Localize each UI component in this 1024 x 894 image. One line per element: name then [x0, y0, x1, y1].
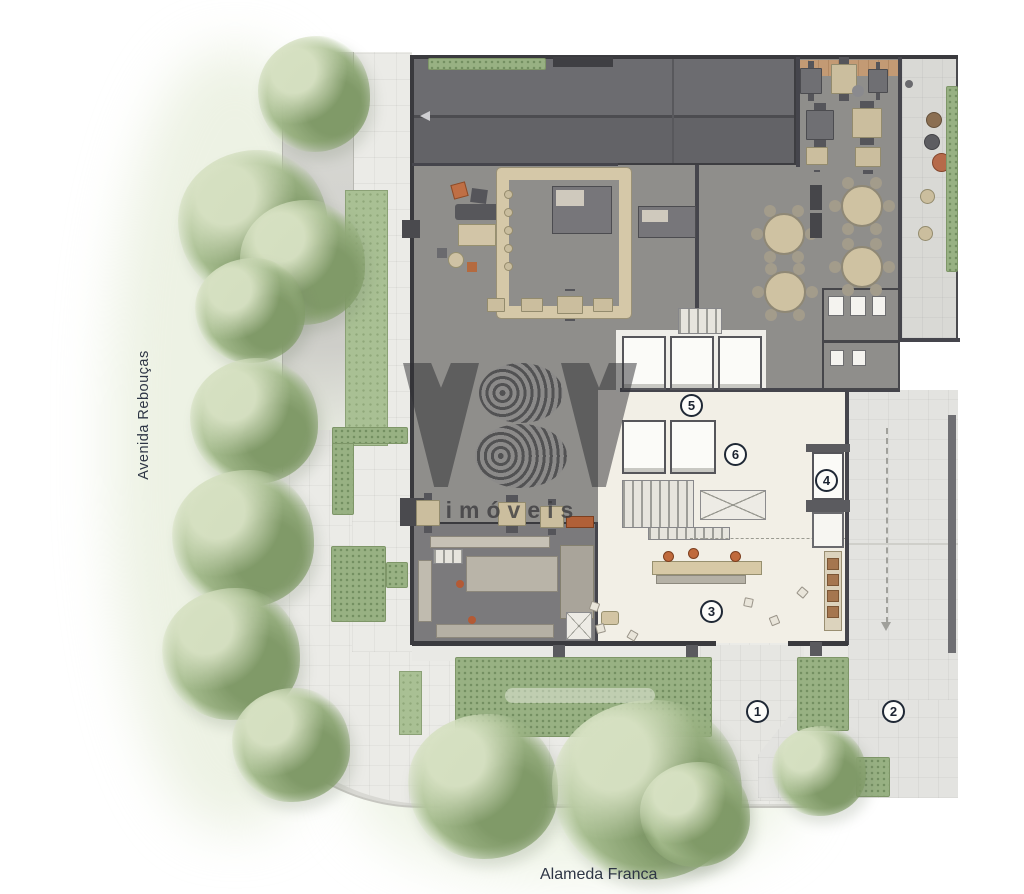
elevator-shaft: [670, 420, 716, 474]
elevator-shaft: [718, 336, 762, 390]
driveway-right-wall: [948, 415, 956, 653]
tree: [408, 714, 558, 859]
elevator-shaft: [670, 336, 714, 390]
terrace-plant: [905, 80, 913, 88]
dining-table-small: [806, 147, 828, 165]
reception-stool: [730, 551, 741, 562]
armchair: [470, 188, 488, 204]
deck-table: [800, 68, 822, 94]
reception-desk: [652, 561, 762, 575]
workstation-top: [642, 210, 668, 222]
ramp-joint: [672, 59, 674, 163]
terrace-table: [920, 189, 935, 204]
workstation-top: [556, 190, 584, 206]
service-elevator-frame: [806, 444, 850, 452]
terrace-pouf: [926, 112, 942, 128]
reception-stool: [663, 551, 674, 562]
reception-front: [656, 575, 746, 584]
wc-fixture: [850, 296, 866, 316]
bench-orange: [566, 516, 594, 528]
street-label-avenida-reboucas: Avenida Rebouças: [136, 320, 160, 510]
coffee-bar-item: [827, 558, 839, 570]
wc-fixture: [872, 296, 886, 316]
wc-fixture: [828, 296, 844, 316]
wc-fixture: [830, 350, 844, 366]
wall-left: [410, 55, 414, 645]
driveway-main: [848, 390, 958, 700]
stool: [437, 248, 447, 258]
ramp-divider: [414, 115, 794, 118]
street-label-alameda-franca: Alameda Franca: [540, 866, 730, 888]
round-table: [841, 246, 883, 288]
lobby-chair: [743, 597, 754, 608]
counter-stool: [504, 244, 513, 253]
deck-table: [868, 69, 888, 93]
service-elevator-band: [806, 500, 850, 512]
tree: [195, 258, 305, 363]
site-plan: 1 2 3 4 5 6 imóveis Avenida Rebouças Ala…: [0, 0, 1024, 894]
kitchen-pot: [468, 616, 476, 624]
banquette: [810, 185, 822, 210]
plan-marker-5: 5: [680, 394, 703, 417]
plan-marker-6: 6: [724, 443, 747, 466]
plan-marker-1: 1: [746, 700, 769, 723]
wall-lobby-right: [845, 390, 849, 645]
plan-marker-2: 2: [882, 700, 905, 723]
side-table: [448, 252, 464, 268]
terrace-hedge: [946, 86, 958, 272]
driveway-centerline: [886, 428, 888, 623]
path-hedge: [797, 657, 849, 731]
round-table: [841, 185, 883, 227]
column: [402, 220, 420, 238]
courtyard-hedge: [332, 427, 408, 444]
tree: [772, 726, 866, 816]
coffee-table: [458, 224, 496, 246]
terrace-table: [918, 226, 933, 241]
wall-ramp-lounge: [412, 163, 618, 166]
kitchen-cabinet: [418, 560, 432, 622]
wall-terrace-bottom: [898, 338, 960, 342]
cafe-table: [557, 296, 583, 314]
meeting-table: [498, 502, 526, 526]
restaurant-steps: [678, 308, 722, 334]
cafe-table: [487, 298, 505, 312]
dining-table: [806, 110, 834, 140]
round-table: [764, 271, 806, 313]
wc-fixture: [852, 350, 866, 366]
reception-stool: [688, 548, 699, 559]
bollard: [810, 642, 822, 656]
terrace-pouf: [924, 134, 940, 150]
tree: [190, 358, 318, 484]
stool: [467, 262, 477, 272]
tree: [232, 688, 350, 802]
coffee-bar-item: [827, 574, 839, 586]
planter-top: [428, 58, 546, 70]
stairs: [622, 480, 694, 528]
wall-bottom-lobby-left: [598, 641, 716, 646]
counter-stool: [504, 208, 513, 217]
meeting-table: [540, 506, 564, 528]
courtyard-hedge: [386, 562, 408, 588]
coffee-bar-item: [827, 590, 839, 602]
dining-table-small: [855, 147, 881, 167]
kitchen-counter: [430, 536, 550, 548]
kitchen-shaft: [566, 612, 592, 640]
kitchen-pot: [456, 580, 464, 588]
cafe-table: [593, 298, 613, 312]
elevator-shaft: [622, 420, 666, 474]
kitchen-island: [466, 556, 558, 592]
cafe-table: [521, 298, 543, 312]
driveway-arrow-icon: [881, 622, 891, 631]
counter-stool: [504, 190, 513, 199]
banquette: [810, 213, 822, 238]
parking-ramp: [412, 57, 796, 165]
kitchen-lockers: [436, 624, 554, 638]
sofa: [455, 204, 499, 220]
tree: [258, 36, 370, 152]
wall-bottom-kitchen: [412, 641, 598, 646]
courtyard-hedge: [331, 546, 386, 622]
kitchen-stairs: [433, 549, 463, 564]
plan-marker-3: 3: [700, 600, 723, 623]
service-elevator-lower: [812, 512, 844, 548]
shaft-void: [700, 490, 766, 520]
elevator-shaft: [622, 336, 666, 390]
meeting-table: [416, 500, 440, 526]
driveway-joint-line: [848, 543, 958, 545]
deck-pouf: [852, 85, 864, 97]
dining-table: [852, 108, 882, 138]
coffee-bar-item: [827, 606, 839, 618]
ramp-arrow-icon: [420, 111, 430, 121]
counter-stool: [504, 262, 513, 271]
grass-square: [399, 671, 422, 735]
plan-marker-4: 4: [815, 469, 838, 492]
wc-divider: [822, 340, 900, 343]
tree: [640, 762, 750, 867]
roof-block: [553, 57, 613, 67]
counter-stool: [504, 226, 513, 235]
round-table: [763, 213, 805, 255]
